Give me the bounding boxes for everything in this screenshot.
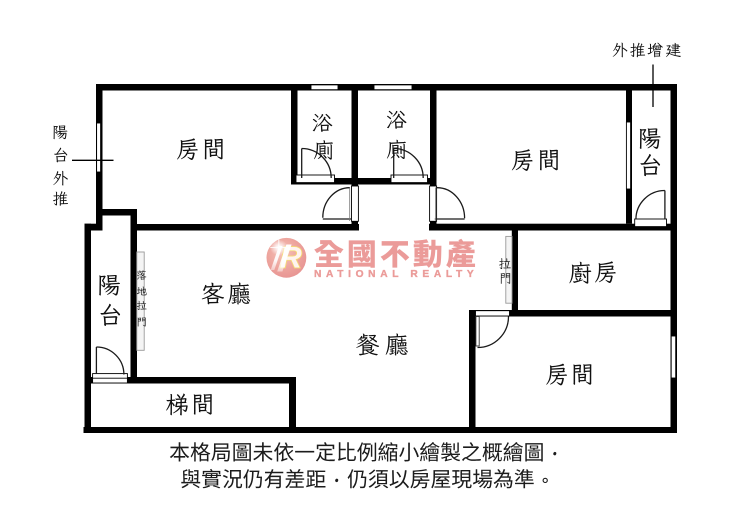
- svg-text:NATIONAL REALTY: NATIONAL REALTY: [314, 269, 478, 280]
